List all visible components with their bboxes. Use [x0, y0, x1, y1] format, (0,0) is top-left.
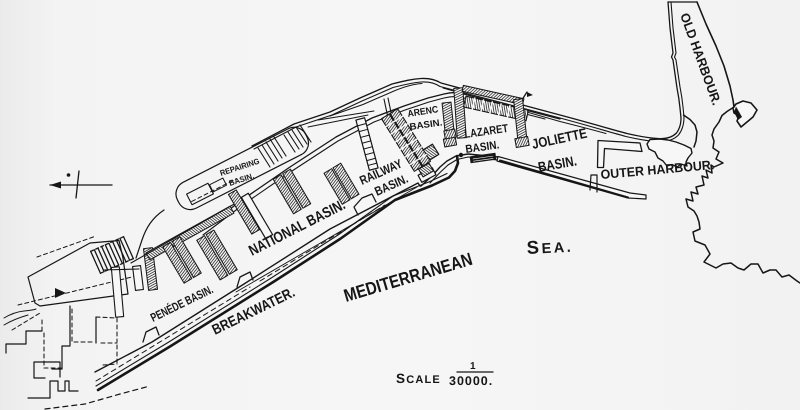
svg-text:1: 1	[470, 361, 476, 372]
svg-text:SCALE: SCALE	[396, 371, 441, 386]
svg-text:30000.: 30000.	[449, 374, 493, 388]
